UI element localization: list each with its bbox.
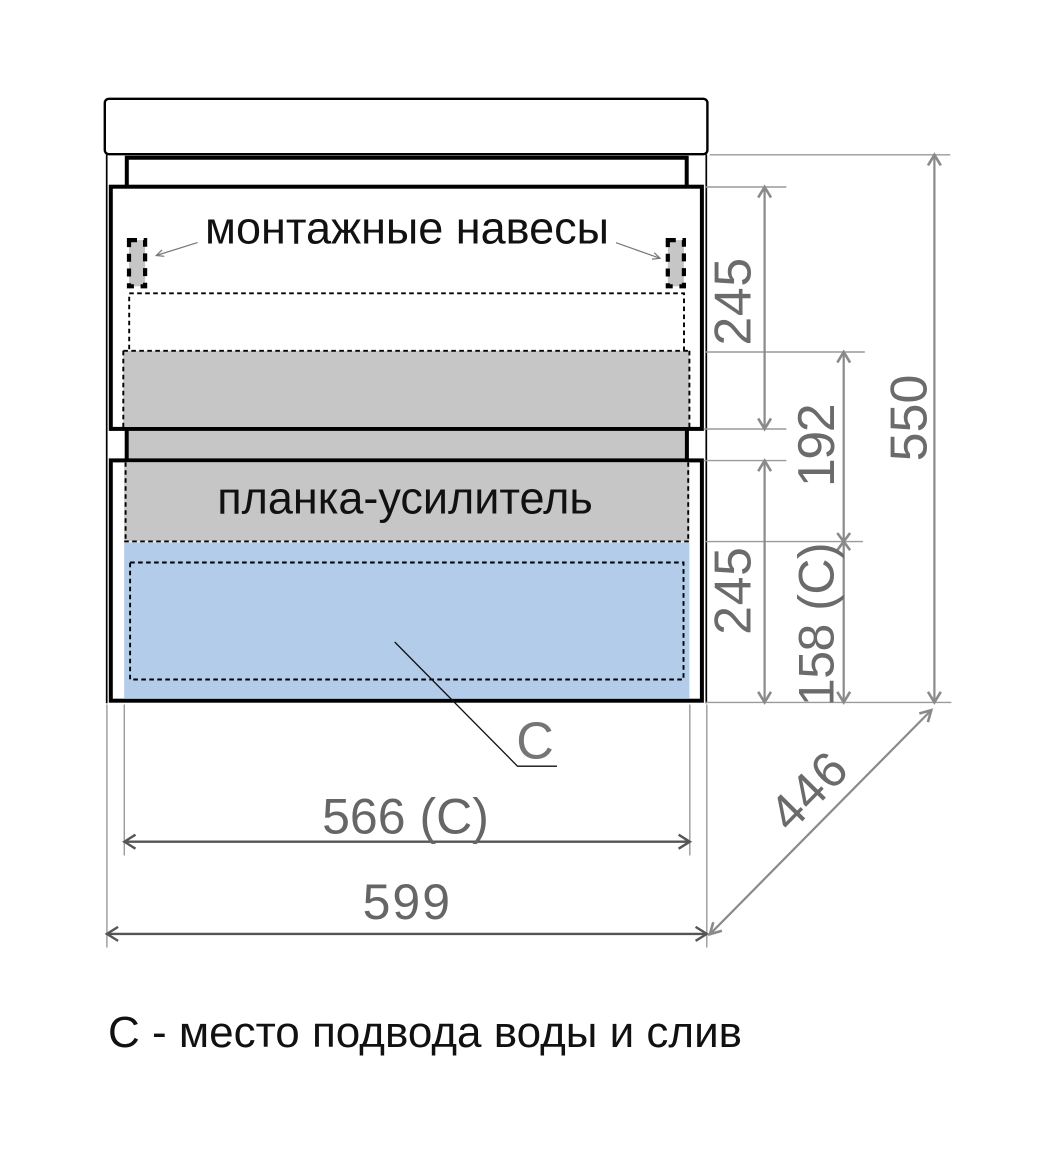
svg-text:192: 192: [788, 405, 846, 487]
svg-text:C: C: [516, 713, 554, 771]
svg-text:245: 245: [705, 257, 763, 345]
svg-text:245: 245: [705, 547, 763, 635]
svg-text:монтажные навесы: монтажные навесы: [205, 203, 609, 254]
svg-text:158 (C): 158 (C): [789, 543, 845, 706]
svg-text:566 (C): 566 (C): [322, 789, 489, 845]
svg-text:599: 599: [363, 874, 452, 930]
svg-text:550: 550: [881, 375, 939, 462]
svg-text:С - место подвода воды и слив: С - место подвода воды и слив: [108, 1008, 742, 1057]
svg-text:планка-усилитель: планка-усилитель: [217, 472, 593, 523]
